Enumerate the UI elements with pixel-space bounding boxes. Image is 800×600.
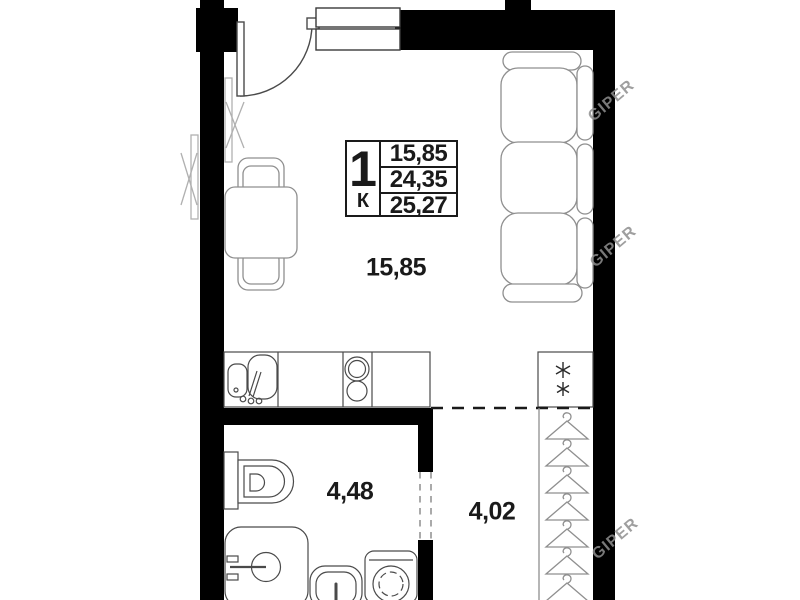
apartment-type-cell: 1 К [347,142,381,215]
sofa-cushion [501,68,577,143]
bathroom-sink [310,566,362,600]
door-swing-arc [240,24,312,96]
sofa-backrest [577,218,593,288]
door-leaf [237,22,244,96]
dining-set [225,158,297,290]
dining-table [225,187,297,258]
area-value: 24,35 [381,166,456,192]
bathroom-door-opening [420,472,431,540]
areas-column: 15,85 24,35 25,27 [381,142,456,215]
toilet [224,452,294,509]
sofa-backrest [577,144,593,214]
room-label-main: 15,85 [366,254,426,283]
sofa-armrest-top [503,52,581,70]
floor-plan: 1 К 15,85 24,35 25,27 15,85 4,48 4,02 GI… [0,0,800,600]
room-label-bathroom: 4,48 [327,478,374,507]
sofa-cushion [501,213,577,285]
fridge [538,352,593,407]
sofa-armrest-bottom [503,284,582,302]
hanger-icon [546,413,588,439]
hanger-icon [546,494,588,520]
room-type-letter: К [357,192,369,210]
washing-machine [365,551,417,600]
hanger-icon [546,440,588,466]
hanger-icon [546,467,588,493]
hanger-icon [546,548,588,574]
sofa [501,52,593,302]
rooms-count: 1 [349,147,377,191]
apartment-info-table: 1 К 15,85 24,35 25,27 [345,140,458,217]
window-lower [181,135,198,219]
sofa-backrest [577,66,593,140]
shower [225,527,308,600]
wardrobe [539,408,588,600]
kitchen-counter [224,352,430,407]
hanger-icon [546,521,588,547]
entry-cabinet [316,8,400,50]
sofa-cushion [501,142,577,214]
area-value: 15,85 [381,142,456,166]
room-label-hallway: 4,02 [469,498,516,527]
hanger-icon [546,575,588,600]
plan-linework [0,0,800,600]
entry-door [237,18,319,96]
area-value: 25,27 [381,192,456,218]
